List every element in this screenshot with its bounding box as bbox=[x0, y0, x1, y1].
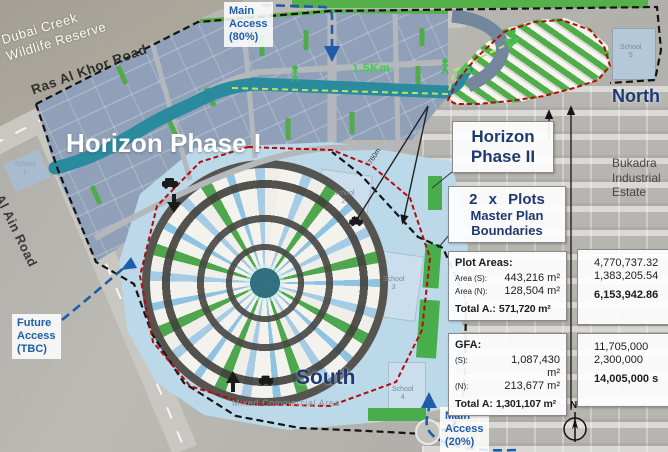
gfa-title: GFA: bbox=[455, 339, 560, 351]
plot-areas-sqft-box: 4,770,737.32 1,383,205.54 6,153,942.86 bbox=[577, 249, 668, 325]
total-label: Total A.: bbox=[455, 303, 496, 315]
green-patch bbox=[422, 243, 441, 288]
main-access-80-label: Main Access (80%) bbox=[224, 2, 273, 47]
gfa-row-north: (N): 213,677 m² bbox=[455, 380, 560, 393]
plot-areas-box: Plot Areas: Area (S): 443,216 m² Area (N… bbox=[448, 251, 567, 321]
plot-area-row-south: Area (S): 443,216 m² bbox=[455, 272, 560, 285]
sqft-value: 1,383,205.54 bbox=[594, 270, 668, 283]
row-value: 213,677 m² bbox=[497, 380, 560, 393]
sqft-total: 14,005,000 s bbox=[594, 373, 668, 385]
plot-area-row-north: Area (N): 128,504 m² bbox=[455, 285, 560, 298]
sqft-value: 4,770,737.32 bbox=[594, 257, 668, 270]
gfa-total: Total A: 1,301,107 m² bbox=[455, 398, 560, 410]
plots-boundaries-box: 2 x Plots Master Plan Boundaries bbox=[448, 186, 566, 243]
plot-areas-title: Plot Areas: bbox=[455, 257, 560, 269]
phase2-title-box: Horizon Phase II bbox=[452, 121, 554, 173]
south-circular-development bbox=[142, 160, 388, 406]
green-patch bbox=[368, 408, 426, 421]
gfa-box: GFA: (S): 1,087,430 m² (N): 213,677 m² T… bbox=[448, 333, 567, 416]
sqft-total: 6,153,942.86 bbox=[594, 289, 668, 301]
gfa-row-south: (S): 1,087,430 m² bbox=[455, 354, 560, 380]
green-patch bbox=[428, 176, 442, 210]
future-access-label: Future Access (TBC) bbox=[12, 314, 61, 359]
total-value: 571,720 m² bbox=[499, 303, 551, 315]
plots-boundaries: Boundaries bbox=[451, 223, 563, 238]
school4-block bbox=[388, 362, 426, 410]
sqft-value: 2,300,000 bbox=[594, 354, 668, 367]
master-plan-map: Dubai Creek Wildlife Reserve Ras Al Khor… bbox=[0, 0, 668, 452]
plot-area-total: Total A.: 571,720 m² bbox=[455, 303, 560, 315]
sqft-value: 11,705,000 bbox=[594, 341, 668, 354]
plots-count: 2 x Plots bbox=[451, 191, 563, 208]
row-label: Area (N): bbox=[455, 285, 497, 298]
row-value: 1,087,430 m² bbox=[497, 354, 560, 380]
green-patch bbox=[416, 299, 440, 358]
plots-masterplan: Master Plan bbox=[451, 208, 563, 223]
row-label: (N): bbox=[455, 380, 497, 393]
row-value: 128,504 m² bbox=[497, 285, 560, 298]
school5-block bbox=[612, 28, 656, 80]
total-label: Total A: bbox=[455, 398, 493, 410]
row-label: Area (S): bbox=[455, 272, 497, 285]
row-value: 443,216 m² bbox=[497, 272, 560, 285]
row-label: (S): bbox=[455, 354, 497, 367]
green-buffer-strip bbox=[292, 0, 648, 8]
gfa-sqft-box: 11,705,000 2,300,000 14,005,000 s bbox=[577, 333, 668, 407]
total-value: 1,301,107 m² bbox=[496, 398, 556, 410]
